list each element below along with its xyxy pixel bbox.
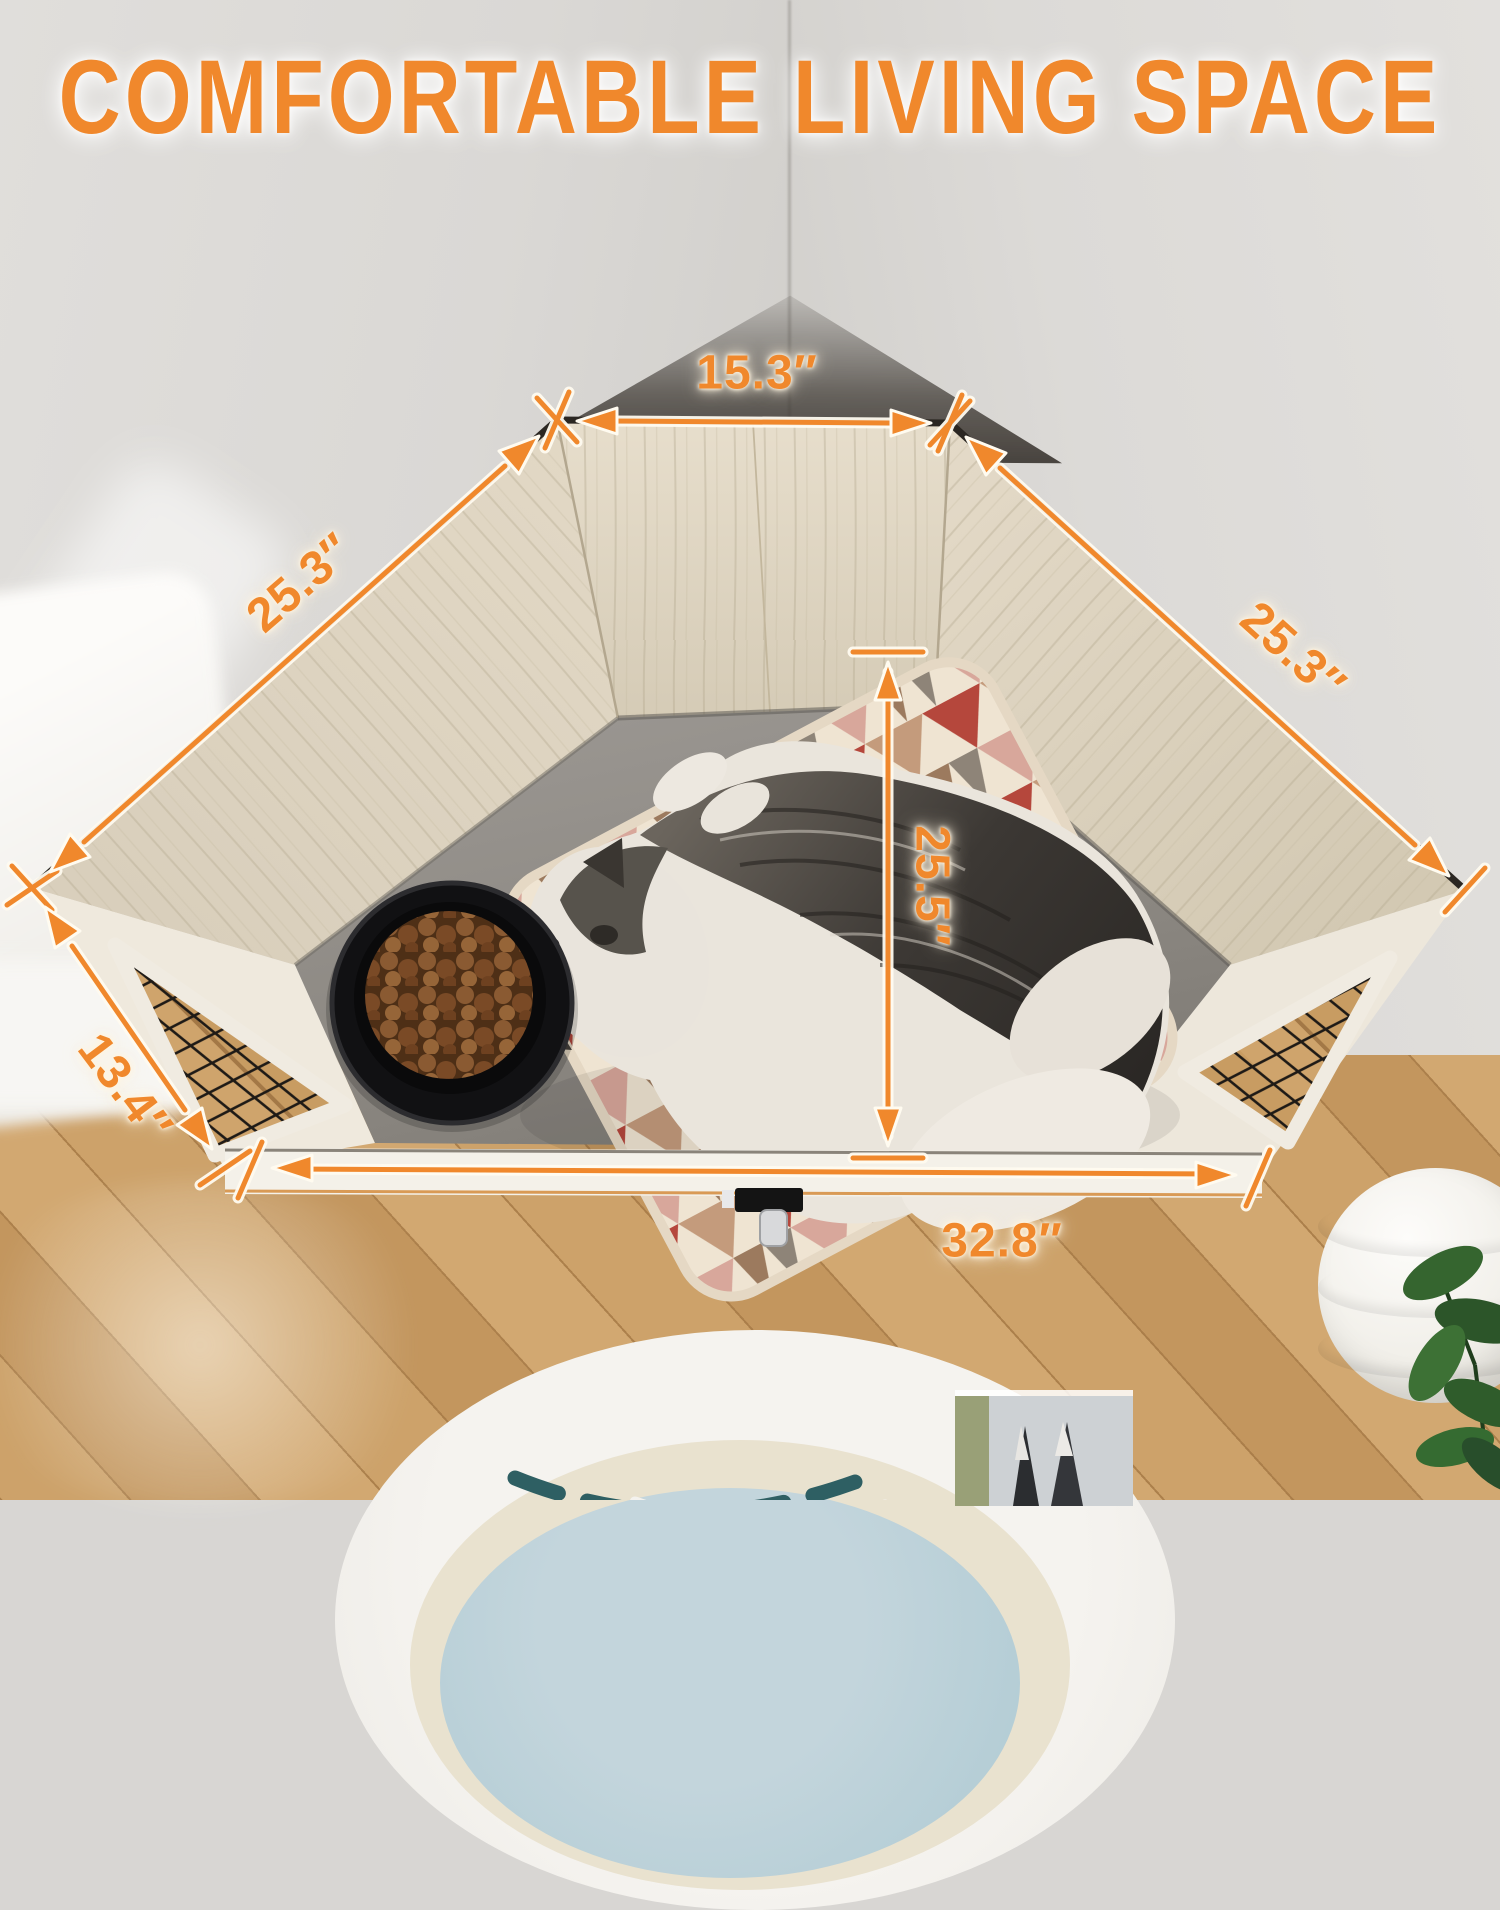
round-rug-blue-center	[440, 1488, 1020, 1878]
dimension-label-inner-depth: 25.5″	[905, 825, 960, 946]
product-image: { "title": "COMFORTABLE LIVING SPACE", "…	[0, 0, 1500, 1500]
dimension-annotations	[0, 0, 1500, 1500]
dimension-label-front-width: 32.8″	[941, 1214, 1062, 1269]
dimension-label-back-width: 15.3″	[696, 346, 817, 401]
page-title: COMFORTABLE LIVING SPACE	[0, 38, 1500, 159]
